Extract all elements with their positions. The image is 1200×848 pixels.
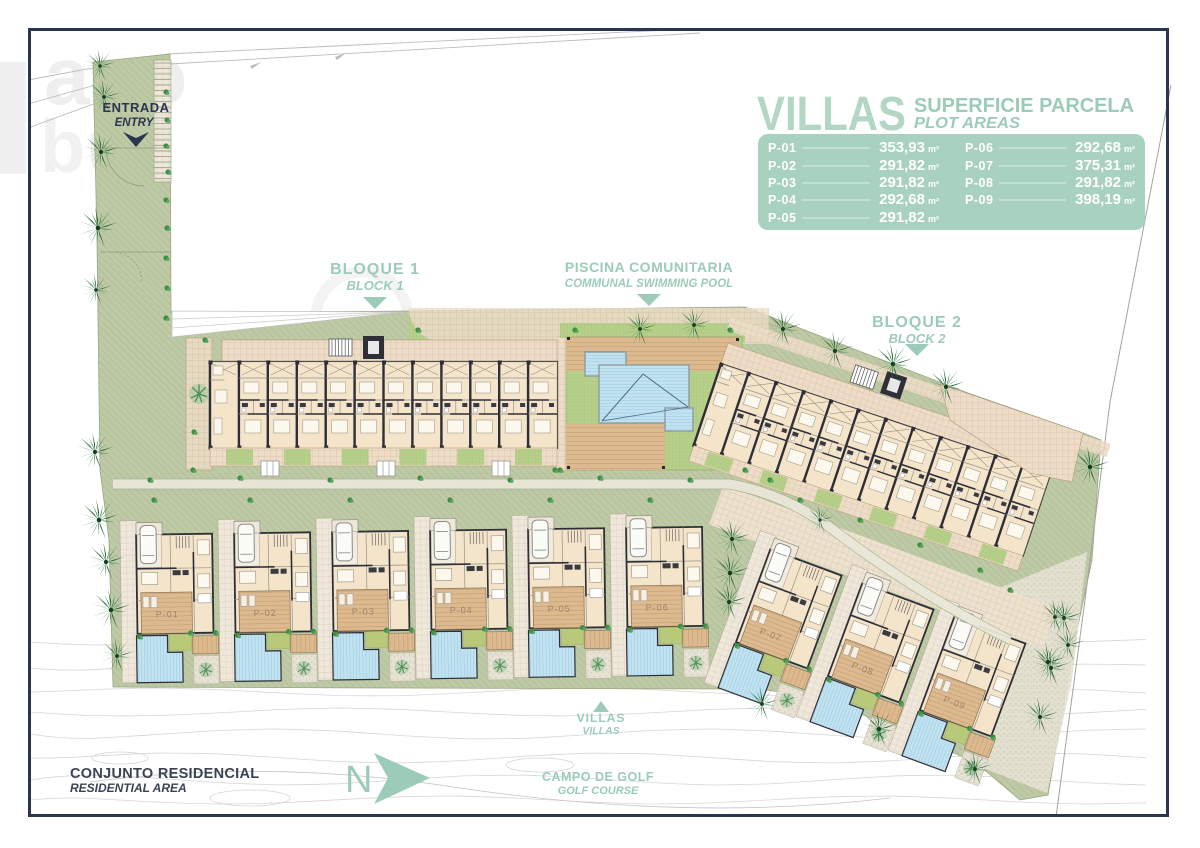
svg-text:398,19: 398,19 <box>1075 191 1121 208</box>
svg-text:353,93: 353,93 <box>879 139 925 156</box>
svg-text:m²: m² <box>1124 196 1135 206</box>
svg-text:P-03: P-03 <box>768 176 796 190</box>
svg-text:CAMPO DE GOLF: CAMPO DE GOLF <box>542 770 654 784</box>
svg-text:P-05: P-05 <box>548 604 571 614</box>
svg-text:P-07: P-07 <box>965 159 993 173</box>
svg-text:VILLAS: VILLAS <box>582 725 619 737</box>
svg-text:m²: m² <box>928 214 939 224</box>
svg-text:P-04: P-04 <box>450 605 473 615</box>
svg-text:BLOQUE 1: BLOQUE 1 <box>330 261 420 278</box>
svg-text:PLOT AREAS: PLOT AREAS <box>914 115 1021 132</box>
svg-text:375,31: 375,31 <box>1075 157 1121 174</box>
svg-text:P-03: P-03 <box>352 606 375 616</box>
svg-text:P-01: P-01 <box>768 141 796 155</box>
svg-text:BLOQUE 2: BLOQUE 2 <box>872 314 962 331</box>
svg-text:m²: m² <box>928 144 939 154</box>
svg-text:P-08: P-08 <box>965 176 993 190</box>
svg-text:P-09: P-09 <box>965 193 993 207</box>
svg-text:P-02: P-02 <box>768 159 796 173</box>
svg-text:m²: m² <box>928 162 939 172</box>
svg-text:P-04: P-04 <box>768 193 796 207</box>
svg-text:P-06: P-06 <box>965 141 993 155</box>
svg-text:BLOCK 1: BLOCK 1 <box>346 278 403 293</box>
svg-text:GOLF COURSE: GOLF COURSE <box>558 785 639 797</box>
svg-text:BLOCK 2: BLOCK 2 <box>888 331 946 346</box>
svg-text:ENTRADA: ENTRADA <box>102 100 169 115</box>
svg-text:P-01: P-01 <box>156 609 179 619</box>
svg-text:m²: m² <box>1124 144 1135 154</box>
svg-text:P-02: P-02 <box>254 608 277 618</box>
svg-text:292,68: 292,68 <box>1075 139 1121 156</box>
svg-text:m²: m² <box>928 179 939 189</box>
svg-text:291,82: 291,82 <box>1075 174 1121 191</box>
svg-text:P-05: P-05 <box>768 211 796 225</box>
svg-text:SUPERFICIE PARCELA: SUPERFICIE PARCELA <box>914 95 1134 117</box>
svg-text:CONJUNTO RESIDENCIAL: CONJUNTO RESIDENCIAL <box>70 766 259 782</box>
svg-text:VILLAS: VILLAS <box>757 88 906 141</box>
svg-text:m²: m² <box>1124 179 1135 189</box>
svg-text:VILLAS: VILLAS <box>577 711 626 725</box>
svg-text:P-06: P-06 <box>646 602 669 612</box>
svg-text:m²: m² <box>1124 162 1135 172</box>
svg-text:m²: m² <box>928 196 939 206</box>
svg-text:COMMUNAL SWIMMING POOL: COMMUNAL SWIMMING POOL <box>565 278 733 290</box>
svg-text:292,68: 292,68 <box>879 191 925 208</box>
svg-text:291,82: 291,82 <box>879 209 925 226</box>
svg-text:PISCINA COMUNITARIA: PISCINA COMUNITARIA <box>565 259 733 275</box>
svg-text:291,82: 291,82 <box>879 174 925 191</box>
svg-text:RESIDENTIAL AREA: RESIDENTIAL AREA <box>70 781 187 795</box>
svg-text:291,82: 291,82 <box>879 157 925 174</box>
svg-text:ENTRY: ENTRY <box>115 117 155 129</box>
svg-text:N: N <box>345 759 372 801</box>
